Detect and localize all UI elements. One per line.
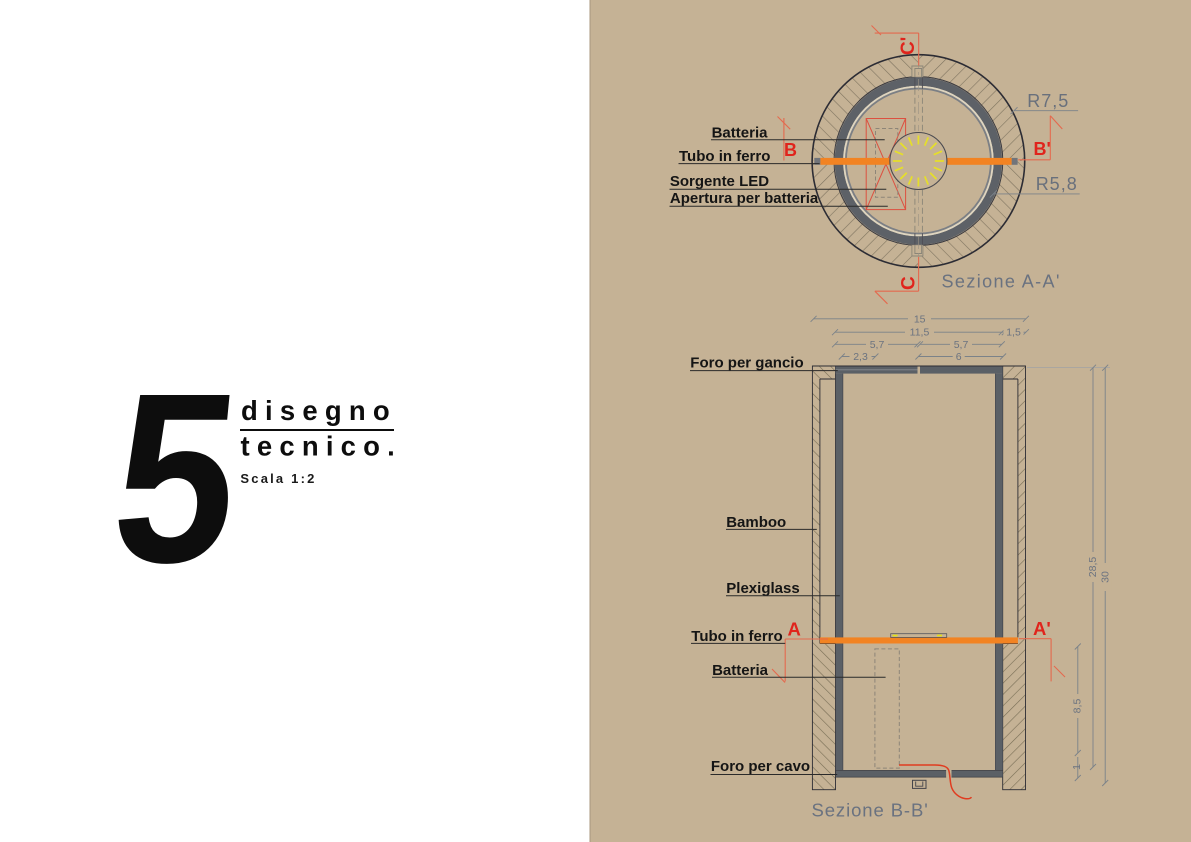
- svg-text:C': C': [898, 37, 919, 55]
- svg-text:Plexiglass: Plexiglass: [726, 580, 799, 597]
- svg-text:2,3: 2,3: [853, 351, 868, 363]
- svg-text:Tubo in ferro: Tubo in ferro: [691, 628, 782, 645]
- svg-text:Foro per gancio: Foro per gancio: [690, 354, 803, 371]
- svg-text:1,5: 1,5: [1006, 327, 1021, 339]
- svg-text:6: 6: [956, 351, 962, 363]
- svg-text:Tubo in ferro: Tubo in ferro: [679, 148, 770, 165]
- svg-text:Batteria: Batteria: [712, 125, 769, 142]
- svg-text:15: 15: [914, 313, 926, 325]
- svg-text:8,5: 8,5: [1072, 699, 1084, 714]
- svg-text:A: A: [788, 619, 801, 640]
- svg-text:30: 30: [1099, 571, 1111, 583]
- svg-text:C: C: [899, 276, 920, 290]
- svg-text:B: B: [784, 140, 797, 160]
- svg-text:Sezione A-A': Sezione A-A': [942, 272, 1061, 292]
- svg-text:Bamboo: Bamboo: [726, 514, 786, 531]
- svg-text:Batteria: Batteria: [712, 662, 769, 679]
- svg-text:5,7: 5,7: [954, 339, 969, 351]
- svg-text:1: 1: [1071, 764, 1083, 770]
- svg-text:R7,5: R7,5: [1027, 91, 1069, 111]
- svg-text:Scala 1:2: Scala 1:2: [240, 471, 316, 486]
- svg-text:Sorgente LED: Sorgente LED: [670, 173, 769, 190]
- svg-text:Sezione B-B': Sezione B-B': [812, 800, 929, 821]
- svg-text:A': A': [1033, 618, 1051, 639]
- svg-text:Foro per cavo: Foro per cavo: [711, 758, 810, 775]
- svg-text:tecnico.: tecnico.: [241, 431, 403, 462]
- svg-text:11,5: 11,5: [910, 327, 930, 339]
- svg-text:28,5: 28,5: [1087, 557, 1099, 578]
- svg-text:R5,8: R5,8: [1036, 174, 1078, 194]
- svg-text:Apertura per batteria: Apertura per batteria: [670, 190, 819, 207]
- svg-text:disegno: disegno: [241, 395, 397, 426]
- svg-text:5,7: 5,7: [870, 339, 885, 351]
- svg-text:B': B': [1034, 139, 1051, 159]
